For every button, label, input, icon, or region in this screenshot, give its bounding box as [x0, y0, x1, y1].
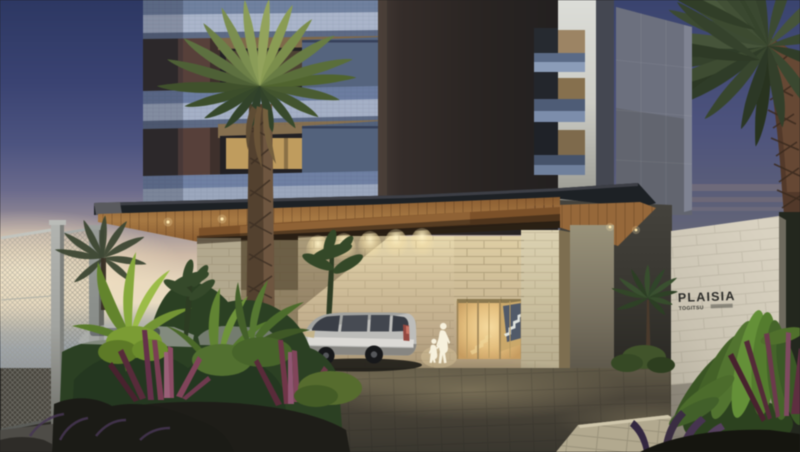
svg-text:TOGITSU: TOGITSU	[679, 305, 704, 312]
svg-text:PLAISIA: PLAISIA	[678, 289, 736, 305]
